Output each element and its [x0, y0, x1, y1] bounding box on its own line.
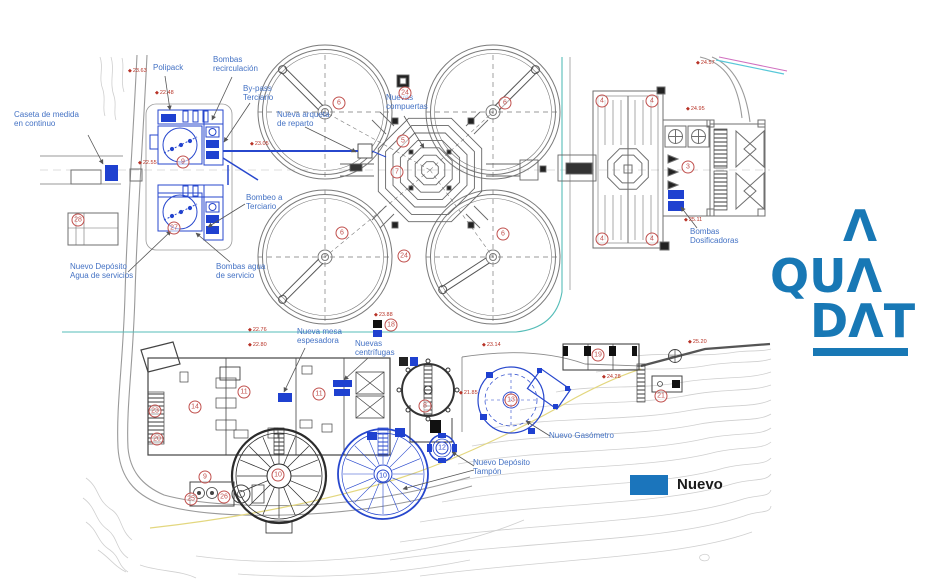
label-bombeo-terciario: Bombeo a Terciario — [246, 193, 282, 212]
elevation-diamond-icon: ◆ — [248, 343, 252, 348]
elevation-value: 25.11 — [689, 217, 702, 223]
item-badge-11: 11 — [238, 386, 251, 399]
elevation-diamond-icon: ◆ — [482, 343, 486, 348]
elevation-value: 24.57 — [701, 60, 715, 66]
aquadat-logo-underline — [813, 348, 908, 356]
elevation-value: 22.76 — [253, 327, 267, 333]
elevation-marker: ◆25.11 — [684, 217, 702, 223]
item-badge-24: 24 — [398, 250, 411, 263]
label-bypass-terciario: By-pass Terciario — [243, 84, 273, 103]
aquadat-logo-caret: Λ — [843, 205, 877, 249]
elevation-marker: ◆21.85 — [459, 390, 478, 396]
elevation-marker: ◆22.80 — [248, 342, 267, 348]
site-plan-page: Caseta de medida en continuoPolipackBomb… — [0, 0, 935, 584]
item-badge-6: 6 — [497, 228, 510, 241]
elevation-diamond-icon: ◆ — [602, 375, 606, 380]
item-badge-3: 3 — [682, 161, 695, 174]
elevation-value: 23.88 — [379, 312, 393, 318]
elevation-marker: ◆24.28 — [602, 374, 621, 380]
item-badge-8: 8 — [419, 400, 432, 413]
elevation-marker: ◆24.95 — [686, 106, 705, 112]
elevation-value: 23.63 — [133, 68, 147, 74]
item-badge-4: 4 — [596, 95, 609, 108]
item-badge-11: 11 — [313, 388, 326, 401]
item-badge-10: 10 — [377, 470, 390, 483]
item-badge-26: 26 — [218, 491, 231, 504]
elevation-marker: ◆24.57 — [696, 60, 715, 66]
elevation-diamond-icon: ◆ — [138, 161, 142, 166]
elevation-marker: ◆22.55 — [138, 160, 157, 166]
elevation-diamond-icon: ◆ — [128, 69, 132, 74]
elevation-value: 22.80 — [253, 342, 267, 348]
item-badge-9: 9 — [177, 156, 190, 169]
elevation-marker: ◆23.14 — [482, 342, 501, 348]
elevation-value: 23.14 — [487, 342, 501, 348]
item-badge-4: 4 — [646, 95, 659, 108]
item-badge-18: 18 — [385, 319, 398, 332]
elevation-diamond-icon: ◆ — [248, 328, 252, 333]
elevation-value: 24.28 — [607, 374, 621, 380]
aquadat-logo-dat: DΛT — [810, 298, 915, 344]
item-badge-14: 14 — [189, 401, 202, 414]
label-deposito-tampon: Nuevo Depósito Tampón — [473, 458, 530, 477]
item-badge-28: 28 — [72, 214, 85, 227]
label-bombas-recirculacion: Bombas recirculación — [213, 55, 258, 74]
label-bombas-agua-servicio: Bombas agua de servicio — [216, 262, 265, 281]
elevation-marker: ◆22.76 — [248, 327, 267, 333]
item-badge-6: 6 — [333, 97, 346, 110]
item-badge-6: 6 — [336, 227, 349, 240]
elevation-marker: ◆23.63 — [128, 68, 147, 74]
elevation-diamond-icon: ◆ — [686, 107, 690, 112]
label-nuevas-centrifugas: Nuevas centrífugas — [355, 339, 395, 358]
item-badge-10: 10 — [272, 469, 285, 482]
elevation-marker: ◆22.48 — [155, 90, 174, 96]
elevation-value: 25.20 — [693, 339, 707, 345]
elevation-diamond-icon: ◆ — [684, 218, 688, 223]
item-badge-19: 19 — [592, 349, 605, 362]
item-badge-7: 7 — [391, 166, 404, 179]
legend-new-swatch — [630, 475, 668, 495]
elevation-value: 22.55 — [143, 160, 157, 166]
elevation-value: 24.95 — [691, 106, 705, 112]
item-badge-20: 20 — [151, 433, 164, 446]
label-polipack: Polipack — [153, 63, 183, 72]
elevation-diamond-icon: ◆ — [696, 61, 700, 66]
elevation-diamond-icon: ◆ — [250, 142, 254, 147]
elevation-diamond-icon: ◆ — [155, 91, 159, 96]
elevation-marker: ◆23.88 — [374, 312, 393, 318]
label-bombas-dosificadoras: Bombas Dosificadoras — [690, 227, 738, 246]
label-mesa-espesadora: Nueva mesa espesadora — [297, 327, 342, 346]
elevation-marker: ◆25.20 — [688, 339, 707, 345]
elevation-marker: ◆23.05 — [250, 141, 269, 147]
item-badge-5: 5 — [397, 135, 410, 148]
item-badge-13: 13 — [505, 394, 518, 407]
elevation-diamond-icon: ◆ — [459, 391, 463, 396]
item-badge-4: 4 — [596, 233, 609, 246]
item-badge-12: 12 — [436, 442, 449, 455]
label-nuevo-gasometro: Nuevo Gasómetro — [549, 431, 614, 440]
elevation-diamond-icon: ◆ — [688, 340, 692, 345]
item-badge-21: 21 — [655, 390, 668, 403]
label-nueva-arqueta: Nueva arqueta de reparto — [277, 110, 329, 129]
item-badge-24: 24 — [399, 87, 412, 100]
elevation-value: 22.48 — [160, 90, 174, 96]
elevation-diamond-icon: ◆ — [374, 313, 378, 318]
item-badge-4: 4 — [646, 233, 659, 246]
label-deposito-agua-servicios: Nuevo Depósito Agua de servicios — [70, 262, 133, 281]
item-badge-9: 9 — [199, 471, 212, 484]
item-badge-27: 27 — [168, 222, 181, 235]
item-badge-6: 6 — [499, 97, 512, 110]
elevation-value: 21.85 — [464, 390, 478, 396]
label-caseta: Caseta de medida en continuo — [14, 110, 79, 129]
item-badge-23: 23 — [149, 405, 162, 418]
legend-new-label: Nuevo — [677, 476, 723, 493]
aquadat-logo-qua: QUΛ — [770, 253, 882, 299]
item-badge-25: 25 — [185, 493, 198, 506]
elevation-value: 23.05 — [255, 141, 269, 147]
